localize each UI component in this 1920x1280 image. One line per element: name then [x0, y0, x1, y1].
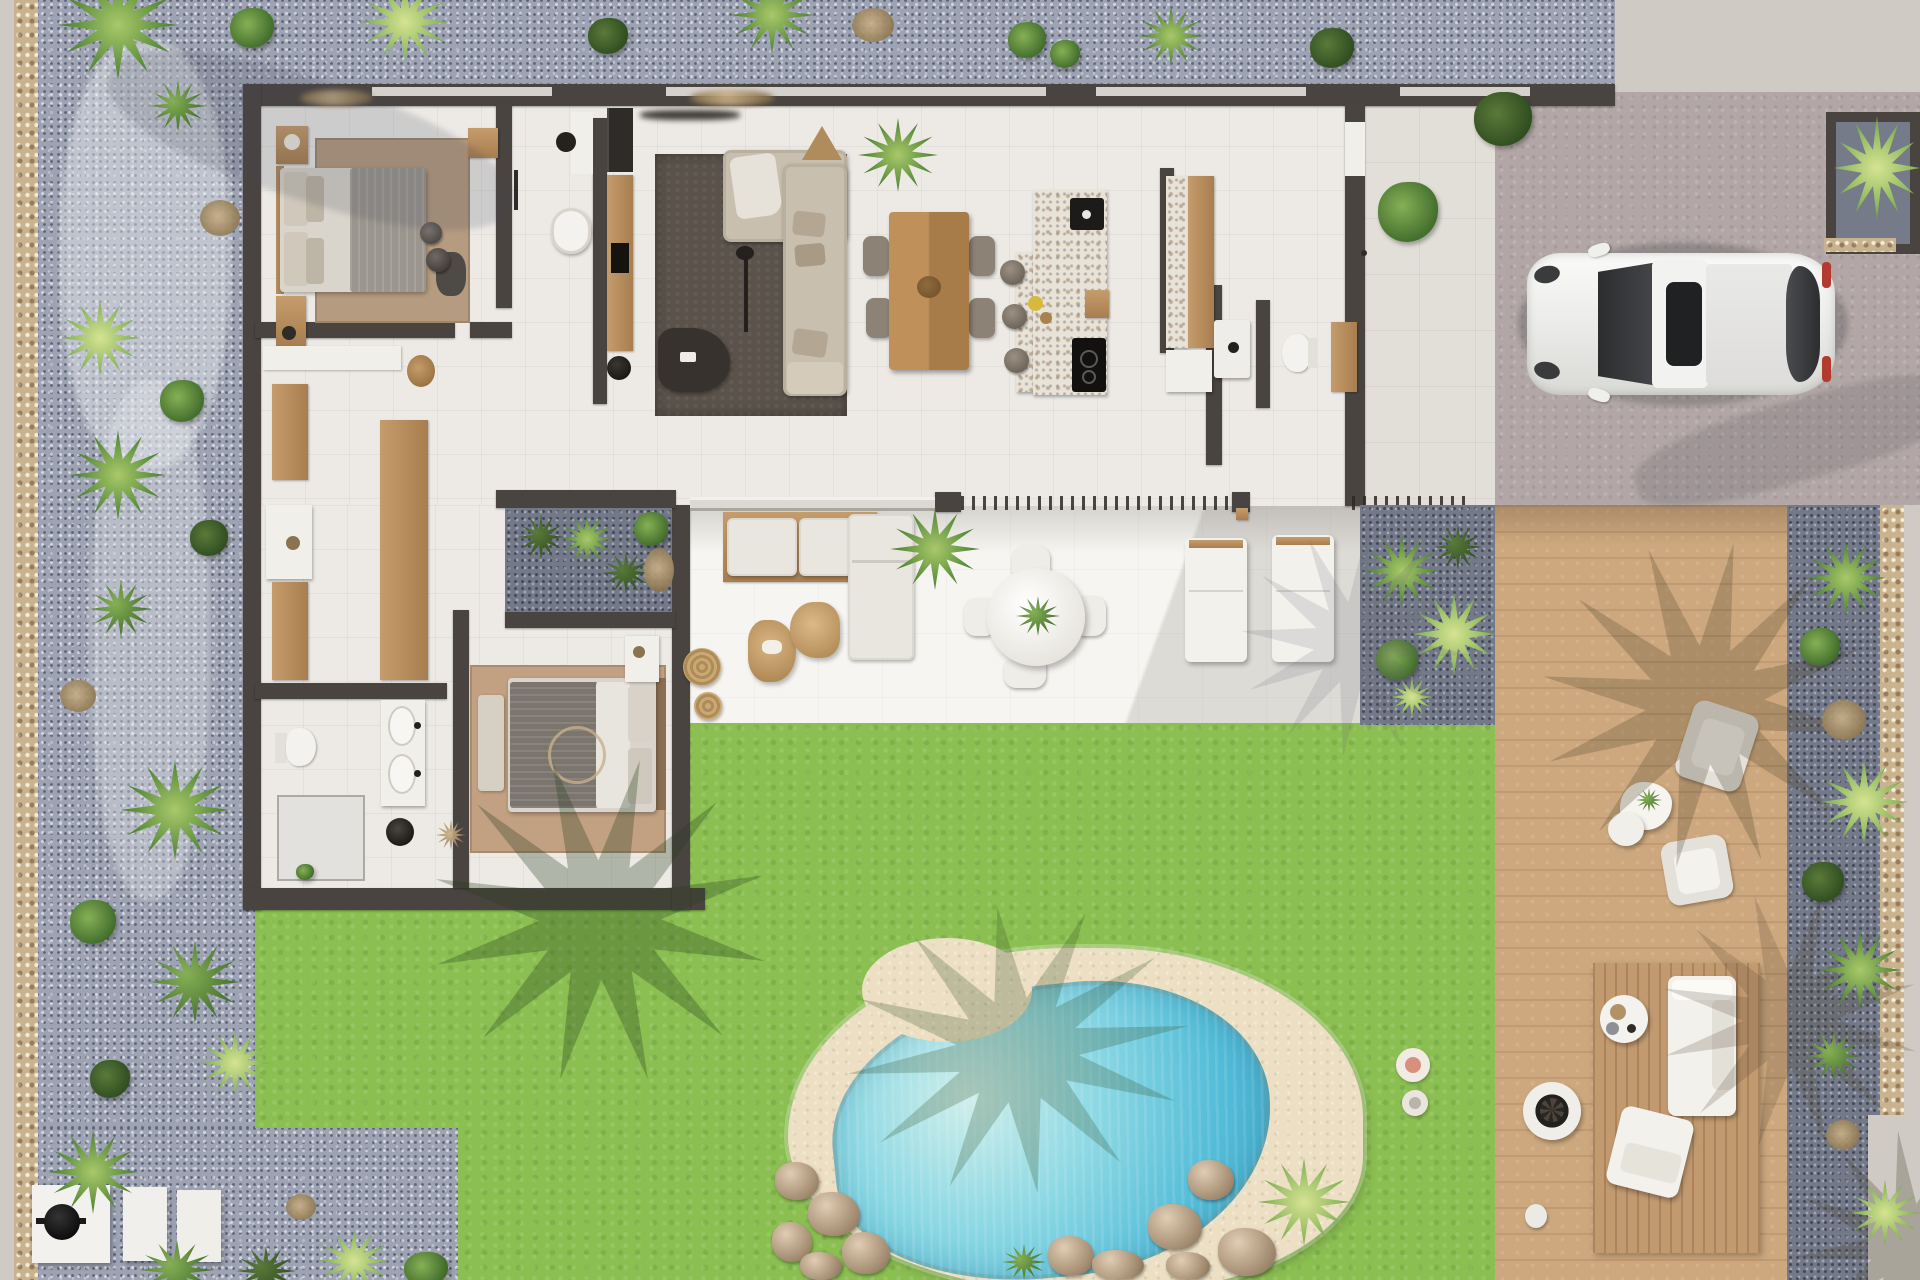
bar-stool — [1000, 260, 1025, 285]
lounger-headrest — [1276, 537, 1330, 545]
dried-grass — [60, 680, 96, 712]
tray-cup — [1606, 1022, 1619, 1035]
window-top-3 — [1096, 87, 1306, 96]
floor-speaker — [607, 356, 631, 380]
dining-chair — [969, 298, 995, 338]
bed2-headboard — [656, 678, 666, 810]
woven-pouf — [694, 692, 722, 720]
step-paver — [123, 1187, 167, 1261]
door-handle — [1361, 250, 1367, 256]
tray-cup — [1610, 1004, 1626, 1020]
round-mirror — [386, 818, 414, 846]
car-taillight — [1822, 262, 1831, 288]
deck-edge-shadow — [1495, 505, 1787, 545]
wall-bathroom2-top — [255, 683, 447, 699]
dried-grass — [1822, 700, 1866, 740]
bed2-bench — [478, 695, 504, 791]
wall-counter-terrazzo — [1166, 176, 1188, 348]
wall-bathroom1 — [593, 118, 607, 404]
vanity-sink — [388, 754, 416, 794]
step-paver — [177, 1190, 221, 1262]
floor-lamp-head — [736, 246, 754, 260]
towel-rail — [514, 170, 518, 210]
bathtub — [551, 208, 591, 254]
shower-area — [277, 795, 365, 881]
washer-knob — [1228, 342, 1239, 353]
hall-wardrobe-b — [272, 582, 308, 680]
toilet-tank-wc — [1308, 338, 1318, 368]
terrace-coffee-table — [790, 602, 840, 658]
a-frame-rack — [802, 126, 842, 160]
wall-garland-decor — [640, 110, 740, 120]
entry-court — [1363, 106, 1495, 506]
sliding-glass-door — [690, 497, 935, 511]
table-centerpiece — [917, 276, 941, 298]
lounger-seam — [1189, 590, 1243, 592]
wall-left — [243, 84, 261, 910]
bbq-kettle — [44, 1204, 80, 1240]
toilet-bowl — [286, 728, 316, 766]
hall-wardrobe-a — [272, 384, 308, 480]
bowl — [1040, 312, 1052, 324]
lounger-headrest — [1189, 540, 1243, 548]
cooktop-burner — [1082, 370, 1096, 384]
round-stool — [407, 355, 435, 387]
sink-faucet — [1082, 210, 1091, 219]
dried-grass — [1826, 1120, 1860, 1150]
round-tray-table — [1600, 995, 1648, 1043]
car-rear-window — [1786, 266, 1820, 382]
vanity-sink — [388, 706, 416, 746]
sink-tap — [414, 770, 421, 777]
bed1-pillow — [284, 232, 308, 286]
wall-wc — [1256, 300, 1270, 408]
desk-item — [286, 536, 300, 550]
sink-tap — [414, 722, 421, 729]
sofa-pillow — [792, 210, 826, 237]
bed1-pillow — [306, 238, 324, 284]
bath1-sink-bowl — [556, 132, 576, 152]
nightstand-decor — [282, 326, 296, 340]
rock — [1166, 1252, 1210, 1280]
rock — [1188, 1160, 1234, 1200]
sun-lounger — [1185, 538, 1247, 662]
dried-grass — [286, 1194, 316, 1220]
rock — [775, 1162, 819, 1200]
coffee-table-book — [680, 352, 696, 362]
pergola-slats-1 — [961, 496, 1231, 510]
lounger-side-table — [1236, 508, 1248, 520]
tall-dark-cabinet — [607, 108, 633, 172]
villa-floor-plan-render — [0, 0, 1920, 1280]
hall-closet-strip — [263, 346, 401, 370]
bedroom2-nightstand — [625, 636, 659, 682]
car-windshield — [1598, 262, 1658, 386]
outdoor-sofa-seat — [727, 518, 797, 576]
terrace-post-1 — [935, 492, 961, 512]
pool-float — [1402, 1090, 1428, 1116]
dining-chair — [863, 236, 889, 276]
car-rear-deck — [1706, 264, 1792, 384]
rock — [1092, 1250, 1144, 1280]
stone-edge-left — [14, 0, 40, 1280]
wall-counter-wood — [1188, 176, 1214, 348]
tray-decor — [762, 640, 782, 654]
wall-courtyard-top — [496, 490, 676, 508]
nightstand-decor — [633, 646, 645, 658]
pool-float — [1396, 1048, 1430, 1082]
gravel-border-top — [255, 0, 1615, 92]
rock — [1048, 1236, 1094, 1276]
bar-stool — [1004, 348, 1029, 373]
gold-stone-strip — [1824, 238, 1896, 252]
wall-bedroom2-left — [453, 610, 469, 888]
wall-stub — [470, 322, 512, 338]
bar-stool — [1002, 304, 1027, 329]
window-top-1 — [372, 87, 552, 96]
hall-wardrobe-c — [380, 420, 428, 680]
woven-pouf — [683, 648, 721, 686]
sofa-pillow — [794, 243, 826, 268]
bush — [404, 1252, 448, 1280]
entry-door — [1345, 122, 1365, 176]
courtyard-pampas — [644, 548, 674, 592]
dried-grass — [200, 200, 240, 236]
deck-stool — [1525, 1204, 1547, 1228]
chaise-seam — [852, 560, 910, 563]
rock — [808, 1192, 860, 1236]
dried-grass — [852, 8, 894, 42]
cutting-board — [1085, 290, 1109, 318]
car-taillight — [1822, 356, 1831, 382]
bedroom1-pouf — [426, 248, 450, 272]
dining-chair — [969, 236, 995, 276]
wall-courtyard-bottom — [505, 610, 675, 628]
sofa-white-throw — [729, 152, 783, 220]
sofa-chaise-cushion — [787, 362, 843, 394]
entry-bench — [1331, 322, 1357, 392]
rock — [1148, 1204, 1202, 1250]
sofa-pillow — [791, 328, 828, 358]
floor-lamp-stem — [744, 252, 748, 332]
bed2-pillow — [628, 686, 652, 742]
outdoor-chaise — [848, 514, 914, 660]
kitchen-cabinet — [1166, 350, 1212, 392]
rock — [1218, 1228, 1276, 1276]
rock — [842, 1232, 890, 1274]
tray-cup — [1627, 1024, 1636, 1033]
car-sunroof — [1666, 282, 1702, 366]
fire-pit-coals — [1540, 1098, 1564, 1122]
tv-screen — [611, 243, 629, 273]
rock — [800, 1252, 842, 1280]
fruit-bowl — [1028, 296, 1043, 311]
toilet-bowl-wc — [1282, 334, 1310, 372]
dried-plant-decor — [690, 90, 774, 106]
cooktop-burner — [1080, 350, 1098, 368]
